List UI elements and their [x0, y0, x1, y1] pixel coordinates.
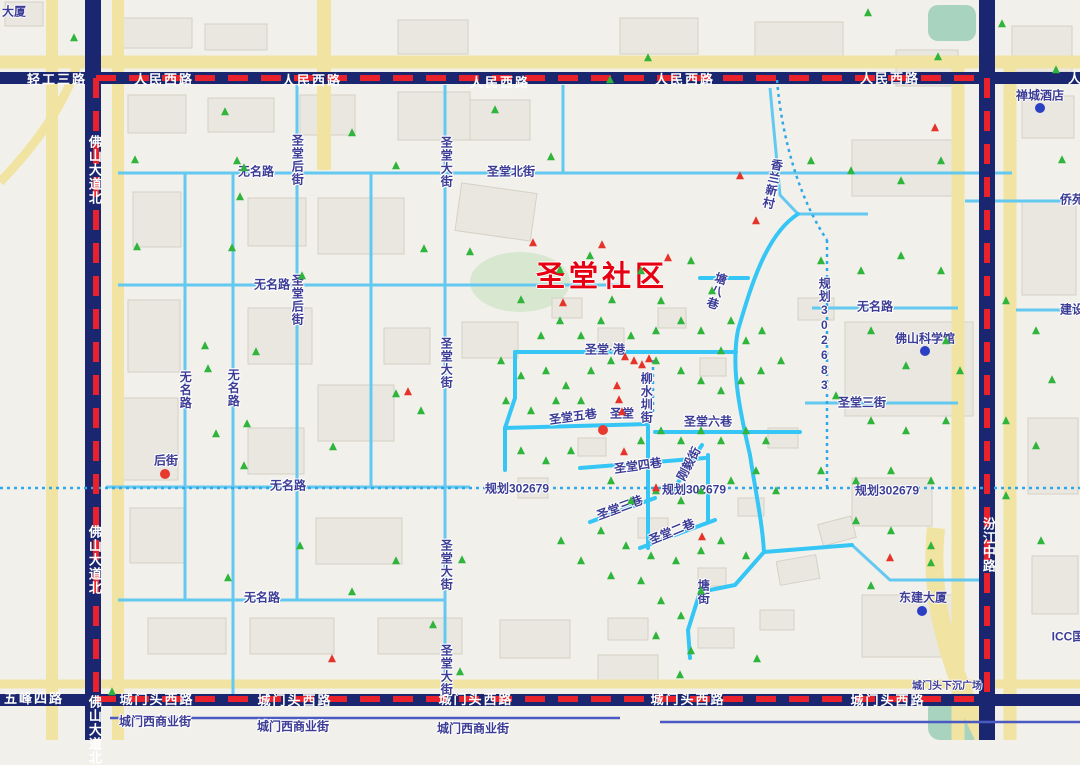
poi-marker-green-triangle[interactable]	[657, 426, 665, 434]
street-label: 柳水圳街	[640, 372, 653, 424]
poi-marker-green-triangle[interactable]	[637, 266, 645, 274]
poi-marker-green-triangle[interactable]	[737, 376, 745, 384]
poi-marker-green-triangle[interactable]	[224, 573, 232, 581]
poi-marker-green-triangle[interactable]	[902, 361, 910, 369]
poi-marker-green-triangle[interactable]	[772, 486, 780, 494]
poi-marker-green-triangle[interactable]	[807, 156, 815, 164]
poi-marker-green-triangle[interactable]	[607, 356, 615, 364]
poi-dot-blue[interactable]	[920, 346, 930, 356]
street-label: 圣堂·港	[585, 344, 625, 357]
poi-marker-green-triangle[interactable]	[607, 571, 615, 579]
street-label: 无名路	[857, 301, 893, 314]
poi-marker-green-triangle[interactable]	[552, 396, 560, 404]
poi-marker-green-triangle[interactable]	[607, 476, 615, 484]
poi-marker-green-triangle[interactable]	[697, 546, 705, 554]
poi-marker-red-triangle[interactable]	[652, 483, 660, 491]
poi-marker-green-triangle[interactable]	[622, 541, 630, 549]
poi-marker-green-triangle[interactable]	[708, 286, 716, 294]
poi-marker-green-triangle[interactable]	[998, 19, 1006, 27]
poi-marker-green-triangle[interactable]	[647, 551, 655, 559]
poi-marker-green-triangle[interactable]	[832, 391, 840, 399]
poi-marker-green-triangle[interactable]	[927, 476, 935, 484]
poi-marker-green-triangle[interactable]	[458, 555, 466, 563]
poi-marker-green-triangle[interactable]	[1032, 441, 1040, 449]
poi-marker-green-triangle[interactable]	[221, 107, 229, 115]
poi-marker-green-triangle[interactable]	[577, 396, 585, 404]
poi-marker-green-triangle[interactable]	[777, 356, 785, 364]
road-label: 人民西路	[134, 73, 194, 87]
poi-marker-red-triangle[interactable]	[664, 253, 672, 261]
poi-marker-green-triangle[interactable]	[677, 611, 685, 619]
poi-marker-green-triangle[interactable]	[296, 541, 304, 549]
poi-marker-green-triangle[interactable]	[577, 331, 585, 339]
poi-marker-green-triangle[interactable]	[717, 436, 725, 444]
street-label: 圣堂大街	[440, 337, 453, 389]
street-label: 后街	[154, 455, 178, 468]
bus-stop-dot-red[interactable]	[160, 469, 170, 479]
poi-marker-green-triangle[interactable]	[817, 256, 825, 264]
poi-marker-green-triangle[interactable]	[1032, 326, 1040, 334]
poi-marker-green-triangle[interactable]	[1002, 491, 1010, 499]
poi-marker-green-triangle[interactable]	[491, 105, 499, 113]
poi-marker-green-triangle[interactable]	[542, 456, 550, 464]
poi-marker-red-triangle[interactable]	[328, 654, 336, 662]
poi-marker-green-triangle[interactable]	[852, 476, 860, 484]
street-label: 刚毅街	[675, 445, 703, 483]
poi-marker-green-triangle[interactable]	[201, 341, 209, 349]
poi-marker-green-triangle[interactable]	[537, 331, 545, 339]
street-label: 无名路	[254, 279, 290, 292]
road-label: 人民西路	[655, 73, 715, 87]
poi-marker-red-triangle[interactable]	[618, 407, 626, 415]
poi-marker-green-triangle[interactable]	[517, 371, 525, 379]
poi-marker-green-triangle[interactable]	[697, 426, 705, 434]
street-label: 圣堂后街	[291, 274, 304, 326]
street-label: 无名路	[244, 592, 280, 605]
poi-marker-green-triangle[interactable]	[644, 53, 652, 61]
street-label: 城门西商业街	[257, 721, 329, 734]
street-label: 圣堂后街	[291, 134, 304, 186]
poi-marker-green-triangle[interactable]	[131, 155, 139, 163]
poi-marker-green-triangle[interactable]	[637, 576, 645, 584]
poi-label: 东建大厦	[899, 592, 947, 605]
poi-marker-red-triangle[interactable]	[621, 352, 629, 360]
poi-marker-green-triangle[interactable]	[240, 163, 248, 171]
poi-marker-green-triangle[interactable]	[867, 581, 875, 589]
poi-marker-green-triangle[interactable]	[392, 161, 400, 169]
poi-marker-green-triangle[interactable]	[70, 33, 78, 41]
poi-marker-green-triangle[interactable]	[717, 536, 725, 544]
poi-marker-green-triangle[interactable]	[348, 587, 356, 595]
road-label: 人民西路	[470, 76, 530, 90]
poi-marker-green-triangle[interactable]	[240, 461, 248, 469]
poi-marker-green-triangle[interactable]	[243, 419, 251, 427]
poi-marker-red-triangle[interactable]	[404, 387, 412, 395]
street-label: 城门头下沉广场	[912, 682, 982, 693]
poi-marker-green-triangle[interactable]	[329, 442, 337, 450]
poi-marker-green-triangle[interactable]	[887, 526, 895, 534]
poi-marker-green-triangle[interactable]	[956, 366, 964, 374]
road-label: 人民西路	[1068, 72, 1080, 86]
poi-marker-green-triangle[interactable]	[867, 326, 875, 334]
poi-marker-green-triangle[interactable]	[1048, 375, 1056, 383]
poi-marker-green-triangle[interactable]	[627, 331, 635, 339]
poi-marker-green-triangle[interactable]	[758, 326, 766, 334]
poi-marker-green-triangle[interactable]	[753, 654, 761, 662]
road-label: 人民西路	[860, 72, 920, 86]
poi-marker-green-triangle[interactable]	[672, 556, 680, 564]
poi-marker-green-triangle[interactable]	[847, 166, 855, 174]
poi-marker-green-triangle[interactable]	[677, 316, 685, 324]
road-label: 佛山大道北	[87, 695, 101, 765]
poi-marker-green-triangle[interactable]	[817, 466, 825, 474]
poi-marker-green-triangle[interactable]	[577, 556, 585, 564]
street-label: 城门西商业街	[119, 716, 191, 729]
road-label: 人民西路	[282, 74, 342, 88]
street-label: 圣堂六巷	[684, 416, 732, 429]
poi-marker-green-triangle[interactable]	[108, 687, 116, 695]
poi-marker-green-triangle[interactable]	[228, 243, 236, 251]
poi-marker-green-triangle[interactable]	[502, 396, 510, 404]
poi-marker-green-triangle[interactable]	[657, 296, 665, 304]
street-label: 圣堂四巷	[613, 456, 662, 475]
poi-marker-green-triangle[interactable]	[1037, 536, 1045, 544]
street-label: 圣堂二巷	[647, 517, 696, 547]
poi-marker-green-triangle[interactable]	[717, 386, 725, 394]
street-label: 圣堂大街	[440, 136, 453, 188]
poi-marker-green-triangle[interactable]	[456, 667, 464, 675]
poi-marker-green-triangle[interactable]	[752, 466, 760, 474]
poi-marker-green-triangle[interactable]	[942, 336, 950, 344]
street-label: 无名路	[179, 371, 192, 410]
poi-marker-green-triangle[interactable]	[927, 541, 935, 549]
poi-marker-green-triangle[interactable]	[652, 326, 660, 334]
poi-marker-green-triangle[interactable]	[420, 244, 428, 252]
poi-marker-green-triangle[interactable]	[902, 426, 910, 434]
road-label: 城门头西路	[257, 694, 332, 708]
road-label: 城门头西路	[119, 693, 194, 707]
poi-marker-green-triangle[interactable]	[542, 366, 550, 374]
poi-marker-green-triangle[interactable]	[934, 52, 942, 60]
poi-marker-green-triangle[interactable]	[133, 242, 141, 250]
poi-marker-green-triangle[interactable]	[677, 496, 685, 504]
poi-marker-green-triangle[interactable]	[652, 356, 660, 364]
poi-marker-green-triangle[interactable]	[697, 326, 705, 334]
poi-marker-green-triangle[interactable]	[697, 586, 705, 594]
poi-marker-red-triangle[interactable]	[598, 240, 606, 248]
bus-stop-dot-red[interactable]	[598, 425, 608, 435]
poi-marker-green-triangle[interactable]	[887, 466, 895, 474]
poi-marker-green-triangle[interactable]	[1002, 296, 1010, 304]
poi-marker-green-triangle[interactable]	[298, 271, 306, 279]
poi-marker-green-triangle[interactable]	[937, 156, 945, 164]
poi-marker-green-triangle[interactable]	[757, 366, 765, 374]
poi-marker-red-triangle[interactable]	[752, 216, 760, 224]
poi-label: ICC国	[1052, 631, 1080, 644]
poi-marker-green-triangle[interactable]	[697, 376, 705, 384]
road-label: 城门头西路	[650, 693, 725, 707]
poi-marker-red-triangle[interactable]	[630, 356, 638, 364]
poi-marker-green-triangle[interactable]	[652, 631, 660, 639]
poi-marker-green-triangle[interactable]	[687, 256, 695, 264]
poi-marker-green-triangle[interactable]	[687, 646, 695, 654]
road-label: 轻工三路	[27, 73, 87, 87]
road-label: 城门头西路	[850, 694, 925, 708]
poi-marker-green-triangle[interactable]	[392, 389, 400, 397]
poi-marker-green-triangle[interactable]	[897, 176, 905, 184]
poi-dot-blue[interactable]	[917, 606, 927, 616]
poi-marker-green-triangle[interactable]	[586, 251, 594, 259]
poi-marker-green-triangle[interactable]	[627, 496, 635, 504]
poi-marker-green-triangle[interactable]	[942, 416, 950, 424]
labels-layer: 圣堂社区 轻工三路人民西路人民西路人民西路人民西路人民西路人民西路佛山大道北佛山…	[0, 0, 1080, 740]
poi-marker-green-triangle[interactable]	[727, 316, 735, 324]
poi-marker-green-triangle[interactable]	[562, 381, 570, 389]
poi-marker-green-triangle[interactable]	[677, 366, 685, 374]
map-viewport[interactable]: 圣堂社区 轻工三路人民西路人民西路人民西路人民西路人民西路人民西路佛山大道北佛山…	[0, 0, 1080, 740]
poi-marker-green-triangle[interactable]	[204, 364, 212, 372]
road-label: 五峰四路	[4, 692, 64, 706]
poi-marker-green-triangle[interactable]	[864, 8, 872, 16]
poi-marker-green-triangle[interactable]	[527, 406, 535, 414]
poi-marker-red-triangle[interactable]	[698, 532, 706, 540]
poi-marker-red-triangle[interactable]	[931, 123, 939, 131]
poi-marker-green-triangle[interactable]	[517, 295, 525, 303]
street-label: 无名路	[270, 480, 306, 493]
street-label: 圣堂大街	[440, 644, 453, 696]
street-label: 规划302683	[818, 277, 831, 393]
poi-marker-green-triangle[interactable]	[429, 620, 437, 628]
street-label: 规划302679	[855, 485, 919, 498]
poi-marker-green-triangle[interactable]	[212, 429, 220, 437]
poi-marker-green-triangle[interactable]	[392, 556, 400, 564]
poi-marker-red-triangle[interactable]	[620, 447, 628, 455]
poi-marker-green-triangle[interactable]	[1058, 155, 1066, 163]
poi-marker-green-triangle[interactable]	[606, 75, 614, 83]
poi-marker-green-triangle[interactable]	[557, 536, 565, 544]
poi-marker-green-triangle[interactable]	[497, 356, 505, 364]
poi-marker-green-triangle[interactable]	[742, 336, 750, 344]
poi-marker-green-triangle[interactable]	[466, 247, 474, 255]
street-label: 圣堂北街	[487, 166, 535, 179]
poi-marker-green-triangle[interactable]	[587, 366, 595, 374]
poi-marker-red-triangle[interactable]	[529, 238, 537, 246]
poi-marker-green-triangle[interactable]	[1002, 416, 1010, 424]
poi-marker-green-triangle[interactable]	[597, 316, 605, 324]
poi-marker-red-triangle[interactable]	[886, 553, 894, 561]
road-label: 汾江中路	[981, 517, 995, 573]
poi-marker-green-triangle[interactable]	[252, 347, 260, 355]
road-label: 佛山大道北	[87, 135, 101, 205]
poi-marker-green-triangle[interactable]	[897, 251, 905, 259]
poi-marker-green-triangle[interactable]	[657, 596, 665, 604]
street-label: 规划302679	[662, 484, 726, 497]
poi-marker-green-triangle[interactable]	[742, 426, 750, 434]
poi-marker-green-triangle[interactable]	[236, 192, 244, 200]
poi-marker-green-triangle[interactable]	[517, 446, 525, 454]
street-label: 建设	[1060, 304, 1080, 317]
poi-marker-green-triangle[interactable]	[567, 446, 575, 454]
poi-marker-green-triangle[interactable]	[637, 436, 645, 444]
street-label: 香兰新村	[760, 157, 783, 210]
road-label: 佛山大道北	[87, 525, 101, 595]
poi-marker-red-triangle[interactable]	[736, 171, 744, 179]
poi-marker-red-triangle[interactable]	[615, 395, 623, 403]
poi-marker-green-triangle[interactable]	[717, 346, 725, 354]
street-label: 城门西商业街	[437, 723, 509, 736]
street-label: 无名路	[227, 369, 240, 408]
poi-marker-green-triangle[interactable]	[677, 436, 685, 444]
poi-marker-green-triangle[interactable]	[676, 670, 684, 678]
poi-marker-green-triangle[interactable]	[556, 265, 564, 273]
poi-marker-green-triangle[interactable]	[927, 558, 935, 566]
street-label: 圣堂三街	[838, 397, 886, 410]
poi-marker-green-triangle[interactable]	[742, 551, 750, 559]
poi-marker-green-triangle[interactable]	[608, 295, 616, 303]
street-label: 圣堂五巷	[548, 407, 597, 426]
poi-marker-green-triangle[interactable]	[697, 486, 705, 494]
street-label: 圣堂三巷	[595, 494, 644, 522]
street-label: 圣堂大街	[440, 539, 453, 591]
poi-marker-green-triangle[interactable]	[867, 416, 875, 424]
street-label: 规划302679	[485, 483, 549, 496]
poi-marker-green-triangle[interactable]	[727, 476, 735, 484]
poi-dot-blue[interactable]	[1035, 103, 1045, 113]
poi-marker-red-triangle[interactable]	[645, 354, 653, 362]
poi-marker-green-triangle[interactable]	[852, 516, 860, 524]
poi-marker-green-triangle[interactable]	[857, 266, 865, 274]
poi-marker-green-triangle[interactable]	[556, 316, 564, 324]
poi-label: 大厦	[2, 6, 26, 19]
poi-marker-green-triangle[interactable]	[597, 526, 605, 534]
poi-marker-green-triangle[interactable]	[348, 128, 356, 136]
poi-marker-green-triangle[interactable]	[762, 436, 770, 444]
poi-label: 禅城酒店	[1016, 90, 1064, 103]
poi-marker-green-triangle[interactable]	[547, 152, 555, 160]
poi-marker-green-triangle[interactable]	[937, 266, 945, 274]
poi-marker-green-triangle[interactable]	[1052, 65, 1060, 73]
poi-marker-green-triangle[interactable]	[417, 406, 425, 414]
poi-marker-red-triangle[interactable]	[559, 298, 567, 306]
street-label: 侨苑	[1060, 194, 1080, 207]
poi-marker-red-triangle[interactable]	[613, 381, 621, 389]
